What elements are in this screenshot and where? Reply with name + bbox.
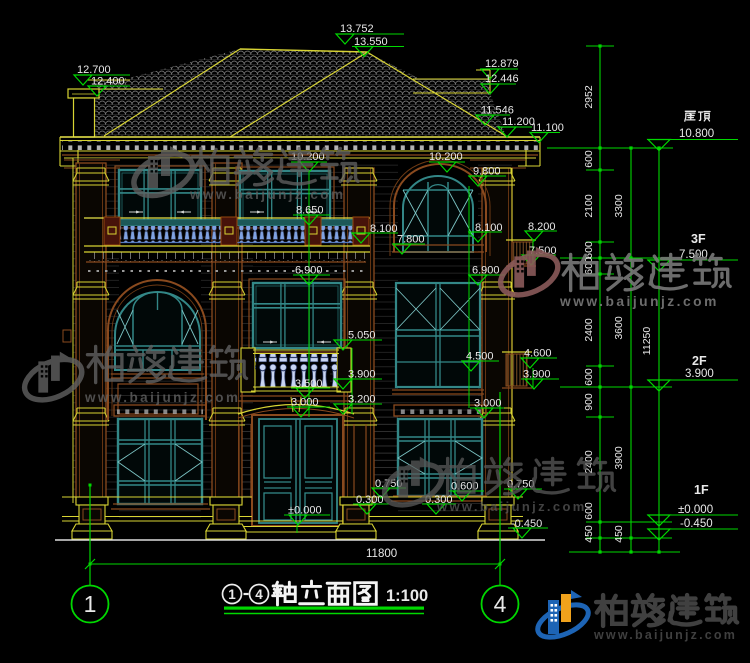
svg-text:www.baijunjz.com: www.baijunjz.com [84, 390, 240, 405]
svg-text:4: 4 [255, 587, 263, 602]
svg-text:10.800: 10.800 [679, 128, 714, 140]
svg-text:4: 4 [494, 591, 507, 617]
svg-text:11.200: 11.200 [502, 116, 535, 128]
svg-text:2400: 2400 [583, 318, 595, 342]
svg-text:±0.000: ±0.000 [678, 504, 713, 516]
svg-text:900: 900 [583, 393, 595, 411]
svg-text:450: 450 [583, 525, 595, 543]
svg-text:2100: 2100 [583, 194, 595, 218]
svg-text:1: 1 [228, 587, 236, 602]
svg-text:3900: 3900 [613, 446, 625, 470]
svg-text:1F: 1F [694, 483, 709, 497]
svg-text:-0.450: -0.450 [680, 518, 713, 530]
svg-text:www.baijunjz.com: www.baijunjz.com [559, 294, 719, 309]
svg-text:3.900: 3.900 [685, 368, 714, 380]
svg-text:450: 450 [613, 525, 625, 543]
svg-text:600: 600 [583, 150, 595, 168]
svg-text:www.baijunjz.com: www.baijunjz.com [593, 628, 737, 642]
svg-text:1:100: 1:100 [386, 587, 428, 605]
svg-text:www.baijunjz.com: www.baijunjz.com [189, 187, 345, 202]
svg-text:12.700: 12.700 [77, 64, 111, 76]
svg-text:11800: 11800 [366, 548, 397, 560]
svg-text:3300: 3300 [613, 194, 625, 218]
svg-text:600: 600 [583, 368, 595, 386]
svg-text:2952: 2952 [583, 85, 595, 109]
svg-text:1: 1 [84, 591, 97, 617]
svg-text:12.879: 12.879 [485, 58, 519, 70]
svg-text:13.752: 13.752 [340, 23, 374, 35]
svg-text:3F: 3F [691, 232, 706, 246]
svg-text:12.446: 12.446 [485, 73, 519, 85]
svg-text:3600: 3600 [613, 316, 625, 340]
svg-text:www.baijunjz.com: www.baijunjz.com [436, 499, 587, 514]
svg-text:10.200: 10.200 [429, 151, 463, 163]
svg-text:11250: 11250 [641, 327, 653, 356]
svg-text:2F: 2F [692, 354, 707, 368]
